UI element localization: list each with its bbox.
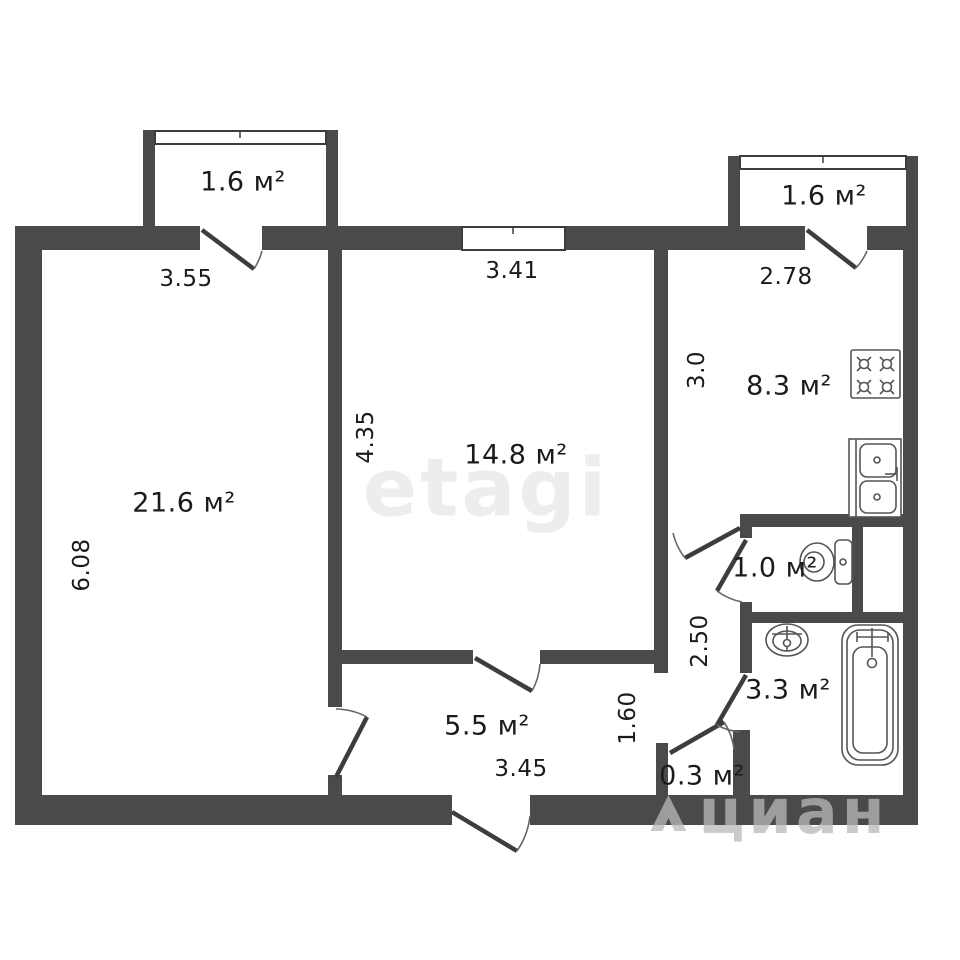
wall-wc-south — [752, 612, 918, 623]
living-room-door — [336, 717, 367, 777]
bedroom-door — [475, 658, 532, 691]
door-arc — [254, 251, 262, 269]
bedroom-width-label: 3.41 — [485, 258, 538, 284]
door-arc — [673, 533, 685, 558]
hallway-width-label: 3.45 — [494, 756, 547, 782]
living-room-height-label: 6.08 — [69, 538, 95, 591]
wall-bedroom-east — [654, 250, 668, 673]
closet-door — [670, 722, 724, 753]
hallway-area-label: 5.5 м² — [444, 711, 530, 742]
closet-area-label: 0.3 м² — [659, 761, 745, 792]
door-arc — [856, 251, 867, 268]
kitchen-area-label: 8.3 м² — [746, 371, 832, 402]
wall-hall-north — [540, 650, 654, 664]
wall-top — [15, 226, 200, 250]
door-arc — [532, 664, 540, 691]
wall-shaft — [852, 527, 863, 612]
door-arc — [724, 722, 734, 749]
balcony-right-area-label: 1.6 м² — [781, 181, 867, 212]
cian-arrow-icon — [647, 791, 689, 833]
living-room-area-label: 21.6 м² — [132, 488, 235, 519]
door-arc — [517, 816, 530, 851]
wall-corridor-east — [740, 602, 752, 673]
wall-living-east — [328, 775, 342, 795]
hallway-height-label: 1.60 — [615, 691, 641, 744]
washbasin-icon — [766, 624, 808, 656]
balcony-left-wall — [326, 130, 338, 226]
bathroom-area-label: 3.3 м² — [745, 675, 831, 706]
bedroom-height-label: 4.35 — [353, 410, 379, 463]
balcony-left-wall — [143, 130, 155, 226]
wall-bottom — [15, 795, 452, 825]
wall-hall-north — [342, 650, 473, 664]
kitchen-sink-icon — [849, 439, 901, 517]
balcony-right-wall — [906, 156, 918, 226]
kitchen-height-label: 3.0 — [684, 351, 710, 389]
corridor-height-label: 2.50 — [687, 614, 713, 667]
door-arc — [717, 591, 742, 602]
wall-corridor-east — [740, 527, 752, 538]
bathtub-icon — [842, 625, 898, 765]
balcony-left-area-label: 1.6 м² — [200, 167, 286, 198]
bedroom-area-label: 14.8 м² — [464, 440, 567, 471]
bathroom-door — [717, 675, 746, 725]
balcony-left-door — [202, 230, 254, 269]
wall-top — [262, 226, 462, 250]
entrance-door — [452, 812, 517, 851]
balcony-right-door — [807, 230, 856, 268]
wall-living-east — [328, 250, 342, 707]
wall-left — [15, 226, 42, 825]
door-arc — [336, 709, 367, 717]
stove-icon — [851, 350, 900, 398]
wc-area-label: 1.0 м² — [732, 553, 818, 584]
wall-top — [565, 226, 805, 250]
floor-plan: etagi — [0, 0, 960, 960]
balcony-right-wall — [728, 156, 740, 226]
living-room-width-label: 3.55 — [159, 266, 212, 292]
kitchen-width-label: 2.78 — [759, 264, 812, 290]
